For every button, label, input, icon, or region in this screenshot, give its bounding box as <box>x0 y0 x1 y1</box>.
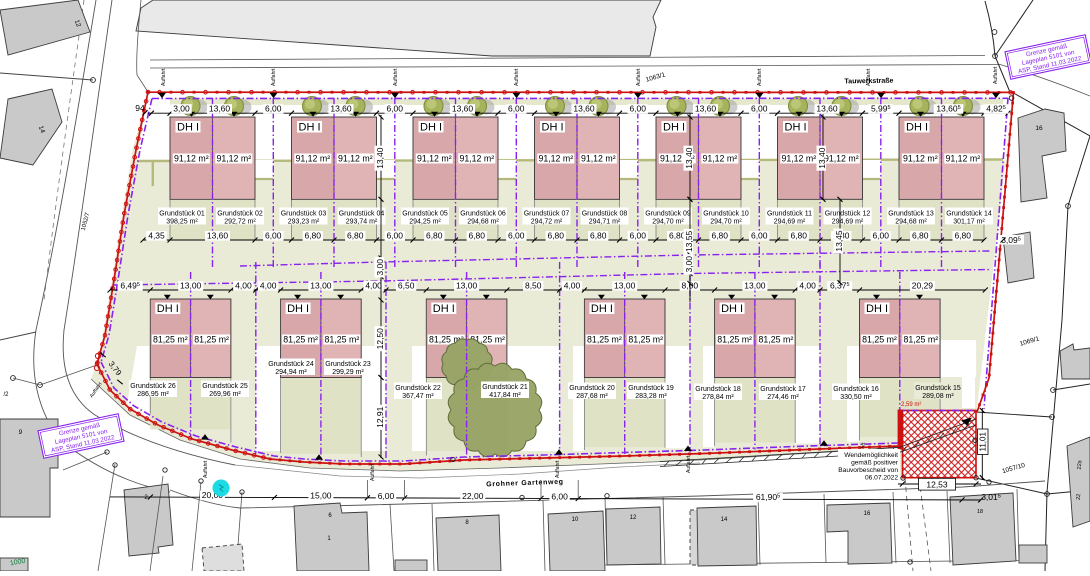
svg-text:294,70 m²: 294,70 m² <box>710 218 742 225</box>
svg-text:10: 10 <box>572 517 579 523</box>
svg-text:Grundstück 22: Grundstück 22 <box>395 385 441 392</box>
svg-text:DH I: DH I <box>433 303 455 315</box>
svg-text:4,00: 4,00 <box>260 281 277 291</box>
svg-text:4,00: 4,00 <box>235 281 252 291</box>
svg-text:330,50 m²: 330,50 m² <box>840 394 872 401</box>
svg-text:Auffahrt: Auffahrt <box>393 68 399 86</box>
svg-text:DH I: DH I <box>906 121 928 133</box>
svg-text:DH I: DH I <box>721 303 743 315</box>
svg-text:Grundstück 14: Grundstück 14 <box>946 210 992 217</box>
svg-text:Auffahrt: Auffahrt <box>993 66 999 84</box>
svg-text:DH I: DH I <box>157 303 179 315</box>
svg-text:6,00: 6,00 <box>551 491 568 501</box>
svg-text:Grundstück 24: Grundstück 24 <box>268 361 314 368</box>
svg-text:Auffahrt: Auffahrt <box>370 463 376 481</box>
svg-text:274,46 m²: 274,46 m² <box>767 394 799 401</box>
svg-text:4,00: 4,00 <box>564 281 581 291</box>
svg-text:91,12 m²: 91,12 m² <box>903 153 938 163</box>
svg-text:4,00: 4,00 <box>365 281 382 291</box>
svg-text:293,74 m²: 293,74 m² <box>346 218 378 225</box>
svg-text:91,12 m²: 91,12 m² <box>338 153 373 163</box>
svg-text:6,00: 6,00 <box>386 231 403 241</box>
svg-text:DH I: DH I <box>785 121 807 133</box>
svg-text:12: 12 <box>630 515 637 521</box>
svg-text:Grundstück 04: Grundstück 04 <box>339 210 385 217</box>
svg-text:Auffahrt: Auffahrt <box>514 68 520 86</box>
svg-text:Grundstück 11: Grundstück 11 <box>767 210 812 217</box>
svg-text:22,00: 22,00 <box>462 491 484 501</box>
svg-text:269,96 m²: 269,96 m² <box>209 391 241 398</box>
svg-text:301,17 m²: 301,17 m² <box>953 218 985 225</box>
svg-text:DH I: DH I <box>420 121 442 133</box>
svg-text:8,50: 8,50 <box>525 281 542 291</box>
svg-text:DH I: DH I <box>591 303 613 315</box>
svg-text:81,25 m²: 81,25 m² <box>325 334 360 344</box>
svg-text:91,12 m²: 91,12 m² <box>581 153 616 163</box>
svg-text:299,29 m²: 299,29 m² <box>332 369 364 376</box>
svg-text:91,12 m²: 91,12 m² <box>824 153 859 163</box>
svg-text:Grundstück 26: Grundstück 26 <box>130 383 176 390</box>
svg-text:12,53: 12,53 <box>926 480 948 490</box>
svg-text:294,68 m²: 294,68 m² <box>467 218 499 225</box>
svg-text:Grundstück 15: Grundstück 15 <box>915 385 961 392</box>
svg-text:Grundstück 08: Grundstück 08 <box>582 210 628 217</box>
svg-text:DH I: DH I <box>542 121 564 133</box>
svg-text:DH I: DH I <box>866 303 888 315</box>
svg-text:6,00: 6,00 <box>751 231 768 241</box>
svg-text:13,00: 13,00 <box>310 281 332 291</box>
svg-text:6,80: 6,80 <box>590 231 607 241</box>
svg-text:6,00: 6,00 <box>872 231 889 241</box>
svg-text:13,00: 13,00 <box>456 281 478 291</box>
svg-text:Grundstück 01: Grundstück 01 <box>159 210 205 217</box>
svg-text:81,25 m²: 81,25 m² <box>862 334 897 344</box>
svg-text:22: 22 <box>1076 494 1083 501</box>
svg-text:6,00: 6,00 <box>265 231 282 241</box>
svg-text:294,68 m²: 294,68 m² <box>895 218 927 225</box>
svg-text:Auffahrt: Auffahrt <box>161 68 167 86</box>
svg-text:398,25 m²: 398,25 m² <box>166 218 198 225</box>
svg-text:6,80: 6,80 <box>547 231 564 241</box>
svg-text:Grundstück 10: Grundstück 10 <box>703 210 749 217</box>
svg-text:Grundstück 06: Grundstück 06 <box>460 210 506 217</box>
svg-text:16: 16 <box>1035 125 1043 132</box>
svg-text:Grundstück 13: Grundstück 13 <box>888 210 934 217</box>
svg-text:6,80: 6,80 <box>468 231 485 241</box>
svg-text:6,50: 6,50 <box>398 281 415 291</box>
svg-text:Wendemöglichkeit: Wendemöglichkeit <box>844 452 898 459</box>
svg-text:12,50: 12,50 <box>375 328 385 350</box>
svg-text:Grundstück 12: Grundstück 12 <box>825 210 871 217</box>
svg-text:3,00: 3,00 <box>173 104 190 114</box>
svg-text:6,80: 6,80 <box>304 231 321 241</box>
svg-text:Grundstück 07: Grundstück 07 <box>524 210 570 217</box>
svg-text:13,60: 13,60 <box>816 104 838 114</box>
svg-text:6,00: 6,00 <box>378 491 395 501</box>
svg-text:13,605: 13,605 <box>936 104 960 114</box>
svg-text:Grundstück 03: Grundstück 03 <box>281 210 327 217</box>
svg-text:06.07.2022: 06.07.2022 <box>865 475 898 482</box>
svg-text:81,25 m²: 81,25 m² <box>628 334 663 344</box>
svg-text:6,00: 6,00 <box>508 231 525 241</box>
svg-text:286,95 m²: 286,95 m² <box>137 391 169 398</box>
svg-text:Grundstück 16: Grundstück 16 <box>833 386 879 393</box>
svg-text:Tauwerkstraße: Tauwerkstraße <box>844 78 893 86</box>
svg-text:287,68 m²: 287,68 m² <box>576 393 608 400</box>
svg-text:Bauvorbescheid von: Bauvorbescheid von <box>838 467 898 474</box>
svg-text:DH I: DH I <box>663 121 685 133</box>
svg-text:81,25 m²: 81,25 m² <box>587 334 622 344</box>
svg-text:15,00: 15,00 <box>310 491 332 501</box>
svg-text:6,80: 6,80 <box>790 231 807 241</box>
svg-text:278,84 m²: 278,84 m² <box>702 394 734 401</box>
svg-text:293,23 m²: 293,23 m² <box>288 218 320 225</box>
svg-text:91,12 m²: 91,12 m² <box>702 153 737 163</box>
svg-text:91,12 m²: 91,12 m² <box>216 153 251 163</box>
svg-text:22a: 22a <box>1077 459 1084 470</box>
svg-text:6,80: 6,80 <box>347 231 364 241</box>
svg-text:gemäß positiver: gemäß positiver <box>851 460 899 467</box>
svg-text:13,60: 13,60 <box>209 104 231 114</box>
svg-text:81,25 m²: 81,25 m² <box>903 334 938 344</box>
svg-text:Grundstück 17: Grundstück 17 <box>760 386 806 393</box>
svg-text:294,69 m²: 294,69 m² <box>832 218 864 225</box>
svg-text:Grundstück 19: Grundstück 19 <box>628 385 674 392</box>
svg-text:13,40: 13,40 <box>684 147 694 169</box>
svg-text:3,00: 3,00 <box>375 259 385 276</box>
svg-text:Grundstück 25: Grundstück 25 <box>202 383 248 390</box>
svg-text:DH I: DH I <box>299 121 321 133</box>
svg-text:13,40: 13,40 <box>817 147 827 169</box>
svg-text:91,12 m²: 91,12 m² <box>459 153 494 163</box>
svg-text:6,00: 6,00 <box>265 104 282 114</box>
svg-text:294,70 m²: 294,70 m² <box>652 218 684 225</box>
svg-text:Auffahrt: Auffahrt <box>636 68 642 86</box>
svg-text:13,60: 13,60 <box>573 104 595 114</box>
svg-text:91,12 m²: 91,12 m² <box>945 153 980 163</box>
svg-text:294,72 m²: 294,72 m² <box>531 218 563 225</box>
svg-text:6,80: 6,80 <box>912 231 929 241</box>
svg-text:294,71 m²: 294,71 m² <box>589 218 621 225</box>
svg-text:20,29: 20,29 <box>912 281 934 291</box>
svg-text:6,00: 6,00 <box>508 104 525 114</box>
svg-text:294,69 m²: 294,69 m² <box>774 218 806 225</box>
svg-text:367,47 m²: 367,47 m² <box>402 393 434 400</box>
svg-text:Auffahrt: Auffahrt <box>555 460 561 478</box>
svg-text:3,00: 3,00 <box>684 256 694 273</box>
svg-text:6,80: 6,80 <box>426 231 443 241</box>
svg-text:13,40: 13,40 <box>375 147 385 169</box>
svg-text:91,12 m²: 91,12 m² <box>295 153 330 163</box>
svg-text:Grundstück 23: Grundstück 23 <box>325 361 371 368</box>
svg-text:13,60: 13,60 <box>695 104 717 114</box>
svg-text:Grundstück 18: Grundstück 18 <box>695 386 741 393</box>
svg-text:294,94 m²: 294,94 m² <box>275 369 307 376</box>
svg-text:81,25 m²: 81,25 m² <box>759 334 794 344</box>
svg-text:Auffahrt: Auffahrt <box>203 460 209 478</box>
svg-text:292,72 m²: 292,72 m² <box>224 218 256 225</box>
svg-text:81,25 m²: 81,25 m² <box>153 334 188 344</box>
svg-text:91,12 m²: 91,12 m² <box>417 153 452 163</box>
svg-text:Grundstück 20: Grundstück 20 <box>569 385 615 392</box>
svg-text:6,00: 6,00 <box>751 104 768 114</box>
svg-text:13,00: 13,00 <box>614 281 636 291</box>
svg-text:/2: /2 <box>3 392 9 398</box>
svg-text:18: 18 <box>977 509 983 515</box>
svg-text:Grundstück 02: Grundstück 02 <box>217 210 263 217</box>
svg-text:13,00: 13,00 <box>180 281 202 291</box>
svg-text:6,00: 6,00 <box>386 104 403 114</box>
svg-text:6,80: 6,80 <box>954 231 971 241</box>
svg-text:91,12 m²: 91,12 m² <box>781 153 816 163</box>
svg-text:94: 94 <box>135 103 145 113</box>
svg-text:13,45: 13,45 <box>834 230 844 252</box>
svg-text:6,00: 6,00 <box>629 231 646 241</box>
svg-text:13,55: 13,55 <box>684 230 694 252</box>
svg-text:6,80: 6,80 <box>711 231 728 241</box>
svg-text:4,35: 4,35 <box>148 231 165 241</box>
svg-text:Grundstück 05: Grundstück 05 <box>402 210 448 217</box>
svg-text:294,25 m²: 294,25 m² <box>409 218 441 225</box>
svg-text:2,59 m²: 2,59 m² <box>901 402 921 408</box>
svg-text:289,08 m²: 289,08 m² <box>922 393 954 400</box>
svg-text:DH I: DH I <box>287 303 309 315</box>
svg-text:91,12 m²: 91,12 m² <box>174 153 209 163</box>
svg-text:81,25 m²: 81,25 m² <box>717 334 752 344</box>
svg-text:13,00: 13,00 <box>744 281 766 291</box>
svg-text:6,00: 6,00 <box>629 104 646 114</box>
svg-text:12,91: 12,91 <box>375 406 385 428</box>
svg-text:283,28 m²: 283,28 m² <box>635 393 667 400</box>
svg-text:81,25 m²: 81,25 m² <box>283 334 318 344</box>
svg-text:Auffahrt: Auffahrt <box>757 68 763 86</box>
svg-text:4,00: 4,00 <box>799 281 816 291</box>
svg-text:417,84 m²: 417,84 m² <box>489 392 521 399</box>
svg-text:Grundstück 21: Grundstück 21 <box>482 384 528 391</box>
svg-text:Auffahrt: Auffahrt <box>686 455 692 473</box>
svg-text:13,60: 13,60 <box>330 104 352 114</box>
svg-text:14: 14 <box>721 517 728 523</box>
svg-text:DH I: DH I <box>177 121 199 133</box>
svg-text:13,60: 13,60 <box>207 231 229 241</box>
svg-text:13,60: 13,60 <box>452 104 474 114</box>
svg-text:11,01: 11,01 <box>979 432 988 452</box>
svg-text:Auffahrt: Auffahrt <box>271 68 277 86</box>
svg-text:Grundstück 09: Grundstück 09 <box>645 210 691 217</box>
svg-text:16: 16 <box>864 511 871 517</box>
svg-text:81,25 m²: 81,25 m² <box>194 334 229 344</box>
svg-text:61,905: 61,905 <box>756 492 780 502</box>
svg-text:91,12 m²: 91,12 m² <box>538 153 573 163</box>
